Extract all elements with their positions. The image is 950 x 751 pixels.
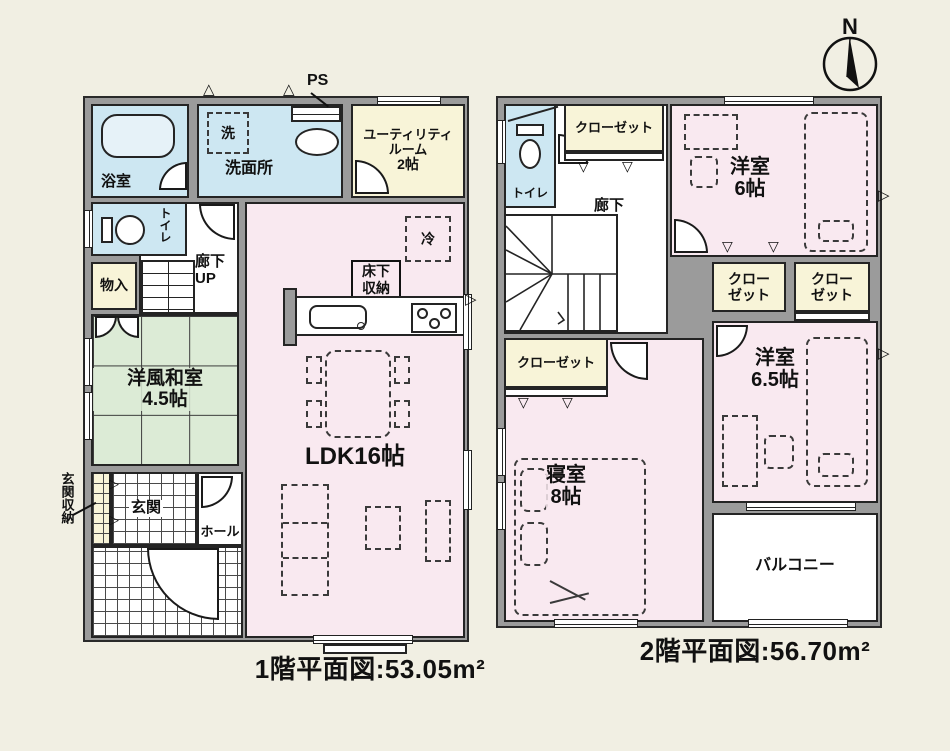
sink bbox=[295, 128, 339, 156]
cabinet-door-icon: ▷ bbox=[109, 512, 119, 528]
wall-vent-icon: ▷ bbox=[878, 186, 890, 204]
bedroom-6: 洋室 6帖 ▽ ▽ bbox=[670, 104, 878, 257]
japanese-room: 洋風和室 4.5帖 bbox=[91, 314, 239, 466]
window bbox=[748, 619, 848, 628]
floor2-plan: トイレ クローゼット ▽ ▽ 廊下 DN bbox=[496, 96, 882, 628]
wall-vent-icon: ▷ bbox=[465, 290, 477, 308]
chair bbox=[764, 435, 794, 469]
bathroom: 浴室 bbox=[91, 104, 189, 198]
ldk-label: LDK16帖 bbox=[247, 444, 463, 471]
master-bedroom-label: 寝室 8帖 bbox=[546, 464, 586, 509]
window bbox=[377, 96, 441, 105]
toilet-corner-shelf bbox=[508, 106, 559, 122]
floor1-plan: 浴室 洗 洗面所 PS ユーティリティ ルーム 2帖 トイレ 物入 廊下 bbox=[83, 96, 469, 642]
wall-vent-icon: ▷ bbox=[878, 344, 890, 362]
toilet-tank bbox=[516, 124, 544, 136]
dining-chair bbox=[306, 400, 322, 428]
dining-chair bbox=[394, 400, 410, 428]
japanese-room-label: 洋風和室 4.5帖 bbox=[93, 368, 237, 411]
stairs-up bbox=[141, 260, 195, 314]
cabinet-door-icon: ▷ bbox=[109, 476, 119, 492]
storage-monoire: 物入 bbox=[91, 262, 137, 310]
window bbox=[313, 635, 413, 644]
bed bbox=[806, 337, 868, 487]
washroom: 洗 洗面所 bbox=[197, 104, 343, 198]
closet-a-label: クロー ゼット bbox=[714, 272, 784, 303]
ldk: 冷 床下 収納 LDK16帖 bbox=[245, 202, 465, 638]
toilet-2f-label: トイレ bbox=[506, 187, 554, 200]
window bbox=[497, 428, 506, 476]
window bbox=[84, 338, 93, 386]
storage-label: 物入 bbox=[100, 278, 128, 294]
closet-a: クロー ゼット bbox=[712, 262, 786, 312]
sofa bbox=[281, 484, 329, 596]
porch bbox=[91, 546, 243, 638]
kitchen-counter bbox=[295, 296, 465, 336]
closet-front bbox=[794, 312, 870, 321]
stove bbox=[411, 303, 457, 333]
hall-door-arc bbox=[201, 476, 233, 508]
refrigerator: 冷 bbox=[405, 216, 451, 262]
folding-door-icon: ▽ bbox=[722, 238, 733, 255]
folding-door-icon: ▽ bbox=[622, 158, 633, 175]
stairs-down-lines bbox=[506, 216, 616, 330]
closet-top-label: クローゼット bbox=[575, 121, 653, 136]
bathtub bbox=[101, 114, 175, 158]
closet-top: クローゼット bbox=[564, 104, 664, 152]
balcony-sliding-door bbox=[746, 502, 856, 511]
closet-b-label: クロー ゼット bbox=[796, 272, 868, 303]
toilet-2f: トイレ bbox=[504, 104, 556, 208]
bedroom-6-label: 洋室 6帖 bbox=[700, 156, 800, 201]
washing-machine: 洗 bbox=[207, 112, 249, 154]
window bbox=[463, 450, 472, 510]
corridor-up-label: 廊下 UP bbox=[195, 254, 225, 288]
washing-machine-label: 洗 bbox=[221, 123, 235, 143]
bedroom-65: 洋室 6.5帖 bbox=[712, 321, 878, 503]
tatami-double-door-arc-right bbox=[117, 316, 139, 338]
genkan-storage-label: 玄関収納 bbox=[59, 472, 74, 524]
bedroom-6-door-arc bbox=[674, 219, 708, 253]
pillow bbox=[520, 522, 548, 566]
folding-door-icon: ▽ bbox=[768, 238, 779, 255]
closet-left: クローゼット bbox=[504, 338, 608, 388]
compass: N bbox=[812, 12, 888, 96]
vent-triangle-icon: △ bbox=[203, 80, 215, 98]
tatami-double-door-arc-left bbox=[95, 316, 117, 338]
ps-label: PS bbox=[307, 72, 328, 90]
bathroom-label: 浴室 bbox=[101, 174, 131, 191]
shoe-cabinet bbox=[91, 472, 111, 546]
stairs-down bbox=[504, 214, 618, 332]
window bbox=[497, 120, 506, 164]
toilet-1f: トイレ bbox=[91, 202, 187, 256]
dining-chair bbox=[306, 356, 322, 384]
pipe-shaft bbox=[291, 106, 341, 122]
window bbox=[497, 482, 506, 530]
balcony-label: バルコニー bbox=[714, 557, 876, 575]
side-table bbox=[365, 506, 401, 550]
utility-room: ユーティリティ ルーム 2帖 bbox=[351, 104, 465, 198]
folding-door-icon: ▽ bbox=[562, 394, 573, 411]
bath-door-arc bbox=[159, 162, 187, 190]
dining-chair bbox=[394, 356, 410, 384]
pillow bbox=[520, 468, 548, 512]
hall-label: ホール bbox=[199, 525, 241, 540]
window bbox=[724, 96, 814, 105]
folding-door-icon: ▽ bbox=[578, 158, 589, 175]
toilet-bowl bbox=[115, 215, 145, 245]
toilet-tank bbox=[101, 217, 113, 243]
window bbox=[554, 619, 638, 628]
refrigerator-label: 冷 bbox=[421, 229, 435, 249]
entrance-door-arc bbox=[147, 548, 219, 620]
folding-door-icon: ▽ bbox=[518, 394, 529, 411]
balcony: バルコニー bbox=[712, 513, 878, 622]
tv-board bbox=[425, 500, 451, 562]
floor2-caption: 2階平面図:56.70m² bbox=[610, 631, 900, 668]
master-door-arc bbox=[610, 342, 648, 380]
floor1-caption: 1階平面図:53.05m² bbox=[195, 649, 545, 686]
closet-b: クロー ゼット bbox=[794, 262, 870, 312]
corridor-2f-label: 廊下 bbox=[594, 198, 624, 215]
hall: ホール bbox=[197, 472, 243, 546]
closet-left-label: クローゼット bbox=[517, 356, 595, 371]
dining-table bbox=[325, 350, 391, 438]
vent-triangle-icon: △ bbox=[283, 80, 295, 98]
window bbox=[84, 210, 93, 248]
floorplan-page: { "colors": { "background": "#f1efe3", "… bbox=[0, 0, 950, 751]
desk bbox=[722, 415, 758, 487]
toilet-1f-label: トイレ bbox=[158, 207, 171, 243]
washroom-label: 洗面所 bbox=[225, 160, 273, 178]
toilet-bowl bbox=[519, 139, 541, 169]
sink-drain bbox=[357, 322, 365, 330]
compass-north-label: N bbox=[842, 14, 858, 39]
bed bbox=[804, 112, 868, 252]
desk bbox=[684, 114, 738, 150]
window bbox=[84, 392, 93, 440]
genkan-label: 玄関 bbox=[129, 500, 163, 517]
genkan: 玄関 bbox=[111, 472, 197, 546]
